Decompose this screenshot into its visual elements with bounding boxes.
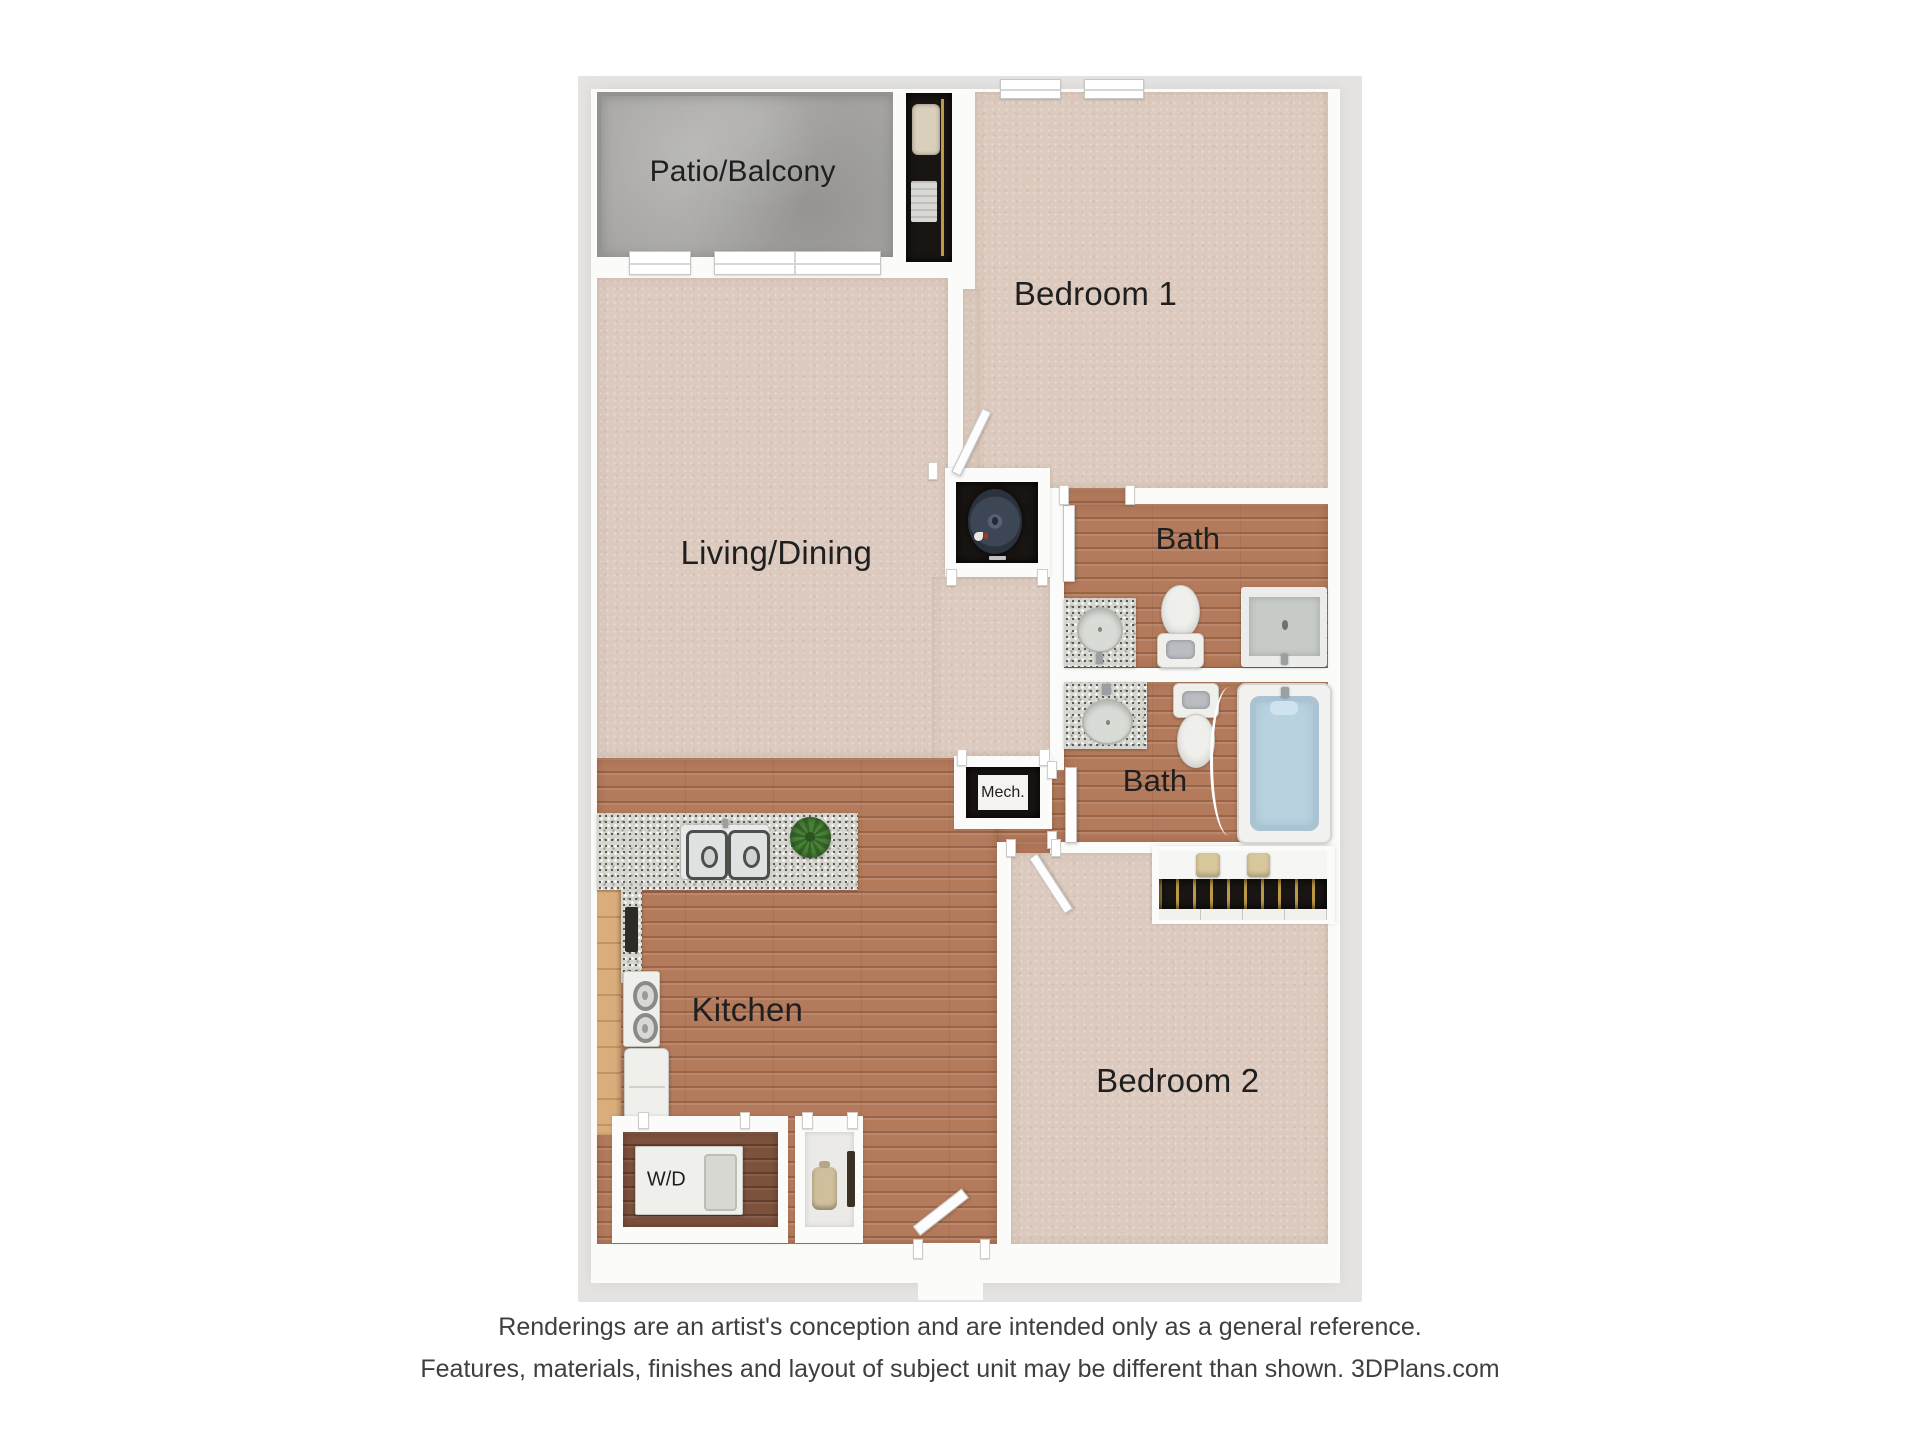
room-label-bath1: Bath (1156, 521, 1221, 557)
room-label-mech: Mech. (981, 784, 1025, 802)
kitchen-faucet (723, 819, 728, 829)
floor-plan: Mech. (578, 76, 1362, 1302)
water-heater-closet (945, 468, 1050, 577)
disclaimer: Renderings are an artist's conception an… (0, 1306, 1920, 1390)
room-label-patio: Patio/Balcony (650, 155, 836, 189)
bath2-vanity (1064, 682, 1147, 749)
laundry-closet: W/D (612, 1116, 788, 1244)
bath1-doorway (1064, 488, 1127, 506)
bath1-shower (1241, 587, 1327, 667)
room-label-bedroom2: Bedroom 2 (1096, 1062, 1259, 1100)
bath2-faucet (1102, 684, 1110, 695)
room-label-living: Living/Dining (681, 534, 873, 572)
kitchen-sink (681, 825, 769, 879)
disclaimer-line1: Renderings are an artist's conception an… (0, 1306, 1920, 1348)
washer-lid (704, 1154, 738, 1211)
stove (623, 971, 660, 1047)
bath2-door-open (1065, 767, 1077, 843)
kitchen-side-counter (621, 890, 642, 983)
bath1-toilet (1155, 585, 1204, 668)
storage-basket (1247, 853, 1271, 877)
bedroom1-closet (906, 93, 951, 263)
towel (1166, 640, 1195, 659)
water-heater (968, 489, 1022, 554)
washer-dryer: W/D (635, 1146, 742, 1214)
closet-hangers (941, 99, 951, 255)
slider-divider (794, 252, 796, 274)
shower-curtain (1210, 687, 1249, 837)
plant (790, 817, 832, 859)
bath1-sink (1077, 607, 1123, 654)
patio-sliding-door (714, 251, 881, 275)
mech-label-box: Mech. (978, 775, 1029, 810)
shower-fixture (1281, 654, 1288, 665)
page: { "plan": { "labels": { "patio": "Patio/… (0, 0, 1920, 1440)
bedroom2-closet (1152, 846, 1335, 924)
bedroom1-window-left (1000, 79, 1061, 99)
bath1-faucet (1096, 653, 1103, 664)
bedroom1-window-right (1084, 79, 1144, 99)
duffel-bag (812, 1167, 838, 1210)
mech-closet: Mech. (954, 756, 1051, 828)
room-label-bath2: Bath (1123, 763, 1188, 799)
bath2-sink (1082, 699, 1133, 745)
dishwasher-slot (625, 907, 638, 952)
hall-floor (932, 577, 1050, 757)
tub-faucet (1281, 687, 1289, 698)
closet-track (1159, 909, 1327, 920)
luggage (912, 104, 940, 155)
closet-shelf (1159, 851, 1327, 879)
bath1-vanity (1064, 598, 1136, 667)
kitchen-cabinets (597, 890, 621, 1135)
folded-blanket (911, 181, 937, 222)
storage-basket (1196, 853, 1220, 877)
stove-burner (633, 1013, 658, 1043)
closet-items (847, 1151, 855, 1207)
patio-window (629, 251, 691, 275)
room-label-wd: W/D (647, 1169, 686, 1192)
towel (1182, 691, 1211, 709)
entry-closet (795, 1116, 863, 1244)
stove-burner (633, 981, 658, 1011)
closet-hanging-rod (1159, 879, 1327, 909)
room-label-kitchen: Kitchen (692, 991, 803, 1029)
room-label-bedroom1: Bedroom 1 (1014, 275, 1177, 313)
bathtub (1237, 683, 1333, 844)
entry-threshold (918, 1243, 982, 1299)
living-floor (597, 278, 948, 757)
disclaimer-line2: Features, materials, finishes and layout… (0, 1348, 1920, 1390)
bath1-door-open (1063, 505, 1075, 582)
heater-valve (974, 532, 983, 541)
